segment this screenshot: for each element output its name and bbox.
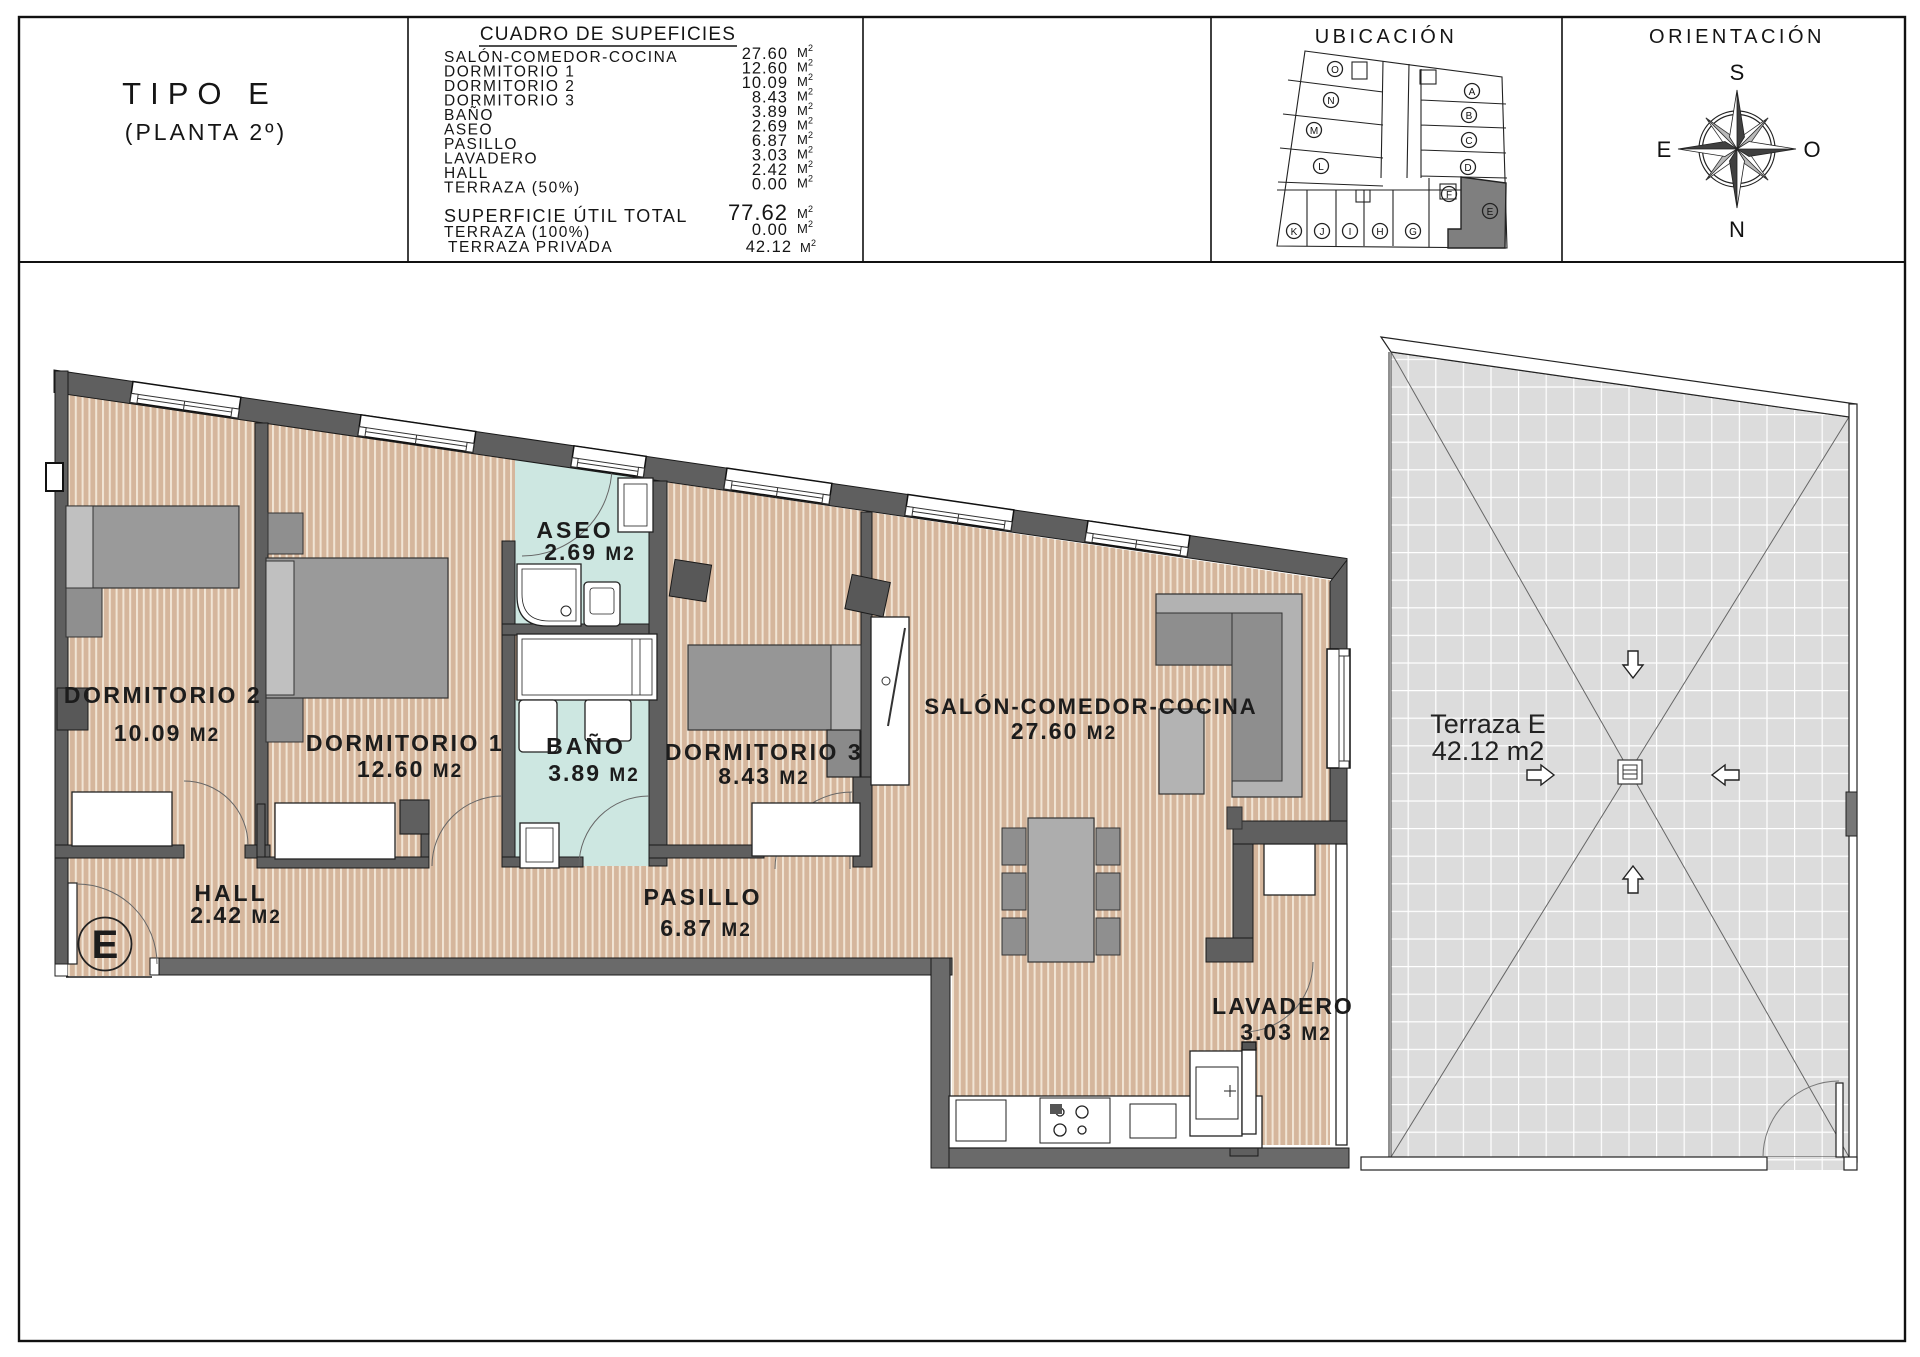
svg-text:L: L <box>1318 162 1324 173</box>
svg-text:2: 2 <box>808 159 814 169</box>
svg-text:M: M <box>797 103 808 118</box>
svg-text:M: M <box>797 176 808 191</box>
svg-text:DORMITORIO 2: DORMITORIO 2 <box>64 682 262 708</box>
svg-text:A: A <box>1469 87 1476 98</box>
svg-text:CUADRO DE SUPEFICIES: CUADRO DE SUPEFICIES <box>480 24 736 45</box>
svg-text:M: M <box>797 74 808 89</box>
svg-text:Terraza E: Terraza E <box>1430 709 1546 739</box>
svg-text:2: 2 <box>808 116 814 126</box>
svg-text:TIPO E: TIPO E <box>122 76 278 111</box>
svg-text:M: M <box>800 240 811 255</box>
svg-text:M: M <box>797 221 808 236</box>
svg-text:D: D <box>1464 163 1471 174</box>
svg-text:M: M <box>1310 126 1318 137</box>
svg-text:ORIENTACIÓN: ORIENTACIÓN <box>1649 25 1825 48</box>
svg-text:2: 2 <box>808 87 814 97</box>
svg-text:N: N <box>1729 217 1745 242</box>
svg-text:M: M <box>797 89 808 104</box>
svg-text:B: B <box>1466 111 1473 122</box>
svg-text:2: 2 <box>808 101 814 111</box>
svg-text:0.00: 0.00 <box>752 176 788 194</box>
svg-text:DORMITORIO 3: DORMITORIO 3 <box>665 739 863 765</box>
svg-text:2: 2 <box>808 174 814 184</box>
svg-text:PASILLO: PASILLO <box>644 884 763 910</box>
svg-text:BAÑO: BAÑO <box>546 732 626 759</box>
svg-text:TERRAZA PRIVADA: TERRAZA PRIVADA <box>448 239 613 256</box>
svg-text:O: O <box>1803 137 1820 162</box>
svg-text:42.12: 42.12 <box>746 238 792 256</box>
svg-text:M: M <box>797 147 808 162</box>
svg-text:G: G <box>1409 227 1417 238</box>
svg-text:2: 2 <box>808 43 814 53</box>
svg-text:2: 2 <box>808 204 814 214</box>
svg-text:2: 2 <box>811 238 817 248</box>
svg-text:LAVADERO: LAVADERO <box>1212 993 1354 1019</box>
svg-text:DORMITORIO 1: DORMITORIO 1 <box>306 730 504 756</box>
svg-text:K: K <box>1291 227 1298 238</box>
svg-text:E: E <box>92 923 119 967</box>
svg-text:SUPERFICIE ÚTIL TOTAL: SUPERFICIE ÚTIL TOTAL <box>444 205 688 226</box>
svg-text:E: E <box>1657 137 1672 162</box>
svg-text:M: M <box>797 206 808 221</box>
svg-text:(PLANTA 2º): (PLANTA 2º) <box>125 119 287 145</box>
svg-text:42.12 m2: 42.12 m2 <box>1432 736 1545 766</box>
svg-text:2: 2 <box>808 219 814 229</box>
svg-text:TERRAZA (50%): TERRAZA (50%) <box>444 180 581 197</box>
svg-text:C: C <box>1465 136 1472 147</box>
svg-text:S: S <box>1730 60 1745 85</box>
svg-text:M: M <box>797 132 808 147</box>
svg-text:N: N <box>1327 96 1334 107</box>
svg-text:M: M <box>797 118 808 133</box>
svg-text:2: 2 <box>808 72 814 82</box>
svg-text:H: H <box>1376 227 1383 238</box>
svg-text:SALÓN-COMEDOR-COCINA: SALÓN-COMEDOR-COCINA <box>924 694 1257 719</box>
svg-text:E: E <box>1487 207 1494 218</box>
svg-text:2: 2 <box>808 58 814 68</box>
svg-text:2: 2 <box>808 145 814 155</box>
svg-text:M: M <box>797 161 808 176</box>
svg-text:0.00: 0.00 <box>752 221 788 239</box>
svg-text:M: M <box>797 60 808 75</box>
svg-text:2: 2 <box>808 130 814 140</box>
svg-text:F: F <box>1446 190 1452 201</box>
svg-text:J: J <box>1320 227 1325 238</box>
svg-text:O: O <box>1331 65 1339 76</box>
svg-text:M: M <box>797 45 808 60</box>
svg-text:I: I <box>1349 227 1352 238</box>
svg-text:UBICACIÓN: UBICACIÓN <box>1315 25 1458 48</box>
